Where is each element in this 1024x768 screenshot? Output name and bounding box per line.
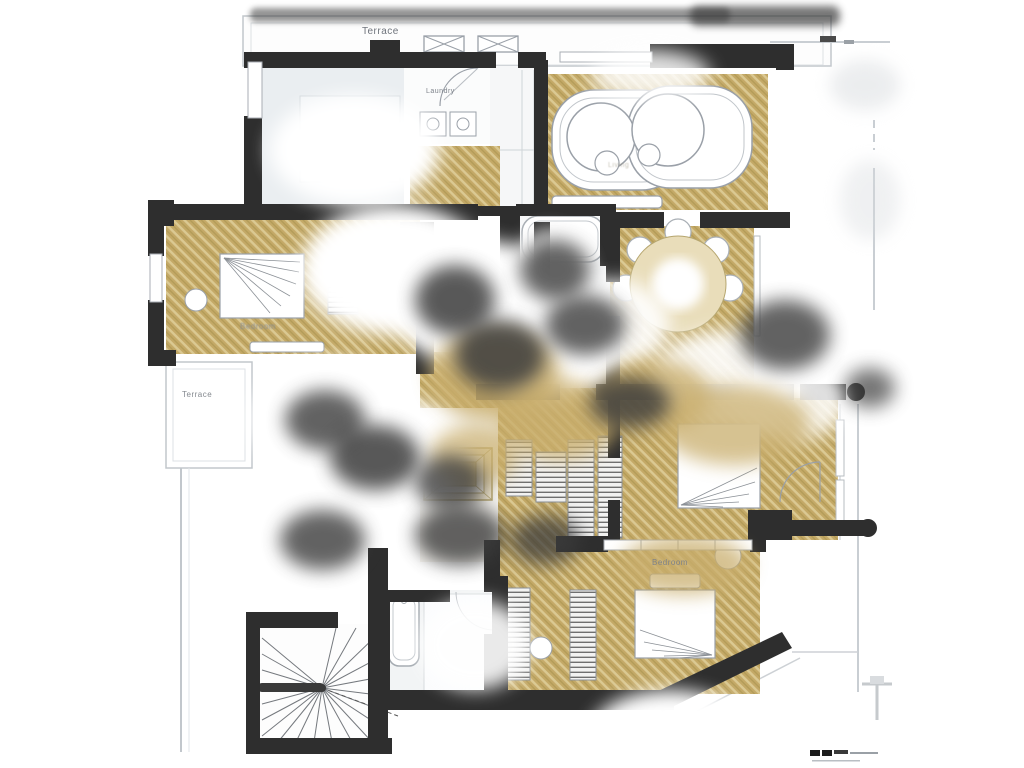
vent-symbol [424, 36, 464, 52]
stair-handrail [258, 683, 324, 692]
side-table [638, 144, 660, 166]
wardrobe-hanging-rail [328, 264, 358, 284]
window-frame [150, 254, 162, 302]
window-frame [754, 236, 760, 336]
lamp-mark [862, 676, 892, 720]
wardrobe-hanging-rail [328, 286, 358, 314]
bed [678, 424, 760, 508]
floor-plan-page: Terrace Laundry Bedroom Terrace Living B… [0, 0, 1024, 768]
wardrobe-hanging-rail [536, 452, 566, 502]
floor-plan-drawing [0, 0, 1024, 768]
terrace-left [166, 362, 252, 752]
washer-icon [420, 112, 446, 136]
room-label-bedroom-left: Bedroom [240, 322, 276, 331]
room-label-terrace-top: Terrace [362, 26, 399, 37]
room-label-living: Living [608, 162, 629, 169]
lobby-floor [410, 146, 500, 206]
wardrobe-hanging-rail [506, 440, 532, 496]
bathroom-bottom [386, 590, 498, 698]
bathtub [389, 594, 419, 666]
bed [220, 254, 304, 318]
vent-symbol [478, 36, 518, 52]
rug [300, 96, 400, 182]
laundry-room [404, 66, 490, 144]
window-frame [836, 420, 844, 476]
rug [424, 448, 492, 500]
window-frame [248, 62, 262, 118]
scale-bar [810, 750, 878, 762]
room-label-laundry: Laundry [426, 88, 455, 95]
wardrobe-hanging-rail [570, 590, 596, 680]
dryer-icon [450, 112, 476, 136]
curtain-strip [752, 78, 764, 206]
headboard [650, 574, 700, 588]
room-label-terrace-left: Terrace [182, 390, 212, 399]
room-label-bedroom-bottom: Bedroom [652, 558, 688, 567]
bathroom-top [518, 208, 610, 348]
window-frame [560, 52, 652, 62]
bench [250, 342, 324, 352]
side-table [185, 289, 207, 311]
wardrobe-hanging-rail [568, 440, 594, 538]
stool [530, 637, 552, 659]
